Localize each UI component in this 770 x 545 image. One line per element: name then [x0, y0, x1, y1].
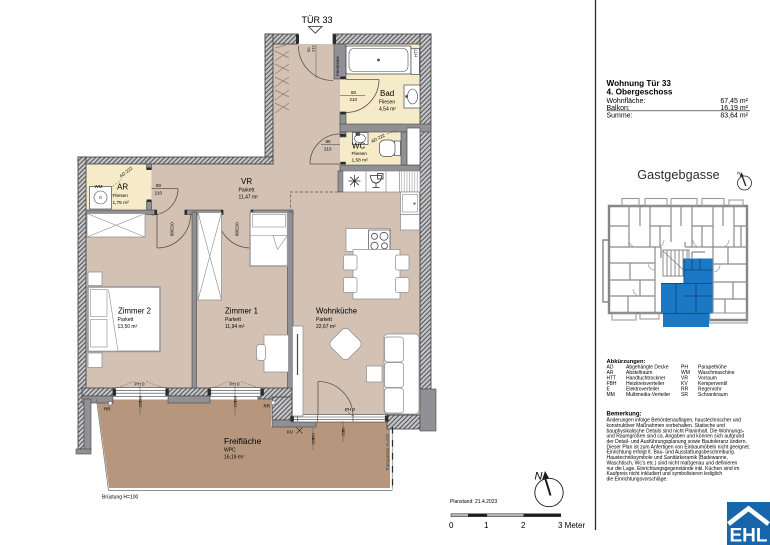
svg-text:PH 0: PH 0: [230, 382, 241, 387]
svg-text:11,94 m²: 11,94 m²: [225, 324, 245, 330]
svg-text:RR: RR: [104, 407, 111, 412]
svg-text:67,45 m²: 67,45 m²: [720, 98, 748, 105]
svg-text:83,64 m²: 83,64 m²: [720, 112, 748, 119]
svg-text:Brüstung H=100: Brüstung H=100: [102, 495, 138, 501]
svg-text:Multimedia-Verteiler: Multimedia-Verteiler: [626, 392, 671, 398]
svg-text:Wohnfläche:: Wohnfläche:: [607, 98, 646, 105]
svg-text:Summe:: Summe:: [607, 112, 633, 119]
svg-text:80: 80: [351, 90, 357, 95]
svg-text:1: 1: [484, 521, 489, 530]
svg-text:Parkett: Parkett: [118, 317, 134, 323]
svg-text:WC: WC: [352, 142, 366, 151]
svg-text:Planstand: 21.4.2023: Planstand: 21.4.2023: [450, 499, 497, 505]
svg-text:HTT: HTT: [413, 48, 418, 57]
svg-text:VR: VR: [241, 177, 252, 186]
svg-text:Gastgebgasse: Gastgebgasse: [637, 168, 719, 182]
svg-text:80: 80: [156, 183, 162, 188]
svg-text:3 Meter: 3 Meter: [558, 521, 585, 530]
svg-text:MM: MM: [607, 392, 615, 398]
svg-text:1,58 m²: 1,58 m²: [352, 158, 369, 164]
svg-text:16,19 m²: 16,19 m²: [224, 455, 244, 461]
svg-text:Parkett: Parkett: [316, 317, 332, 323]
svg-text:Zimmer 2: Zimmer 2: [118, 307, 151, 316]
svg-text:80: 80: [326, 139, 332, 144]
svg-text:die Einrichtungsvorschläge.: die Einrichtungsvorschläge.: [607, 476, 668, 482]
svg-text:1,75 m²: 1,75 m²: [113, 200, 130, 206]
svg-text:210: 210: [324, 147, 332, 152]
svg-text:Transparenz H=220: Transparenz H=220: [385, 433, 390, 471]
svg-text:Fliesen: Fliesen: [352, 151, 368, 157]
svg-text:Fliesen: Fliesen: [379, 100, 395, 106]
svg-text:Fliesen: Fliesen: [113, 193, 129, 199]
svg-text:80/210: 80/210: [170, 222, 175, 236]
svg-text:Parkett: Parkett: [239, 188, 255, 194]
svg-text:WPC: WPC: [224, 448, 236, 454]
svg-text:212: 212: [311, 45, 316, 52]
svg-text:0: 0: [449, 521, 454, 530]
svg-text:PH 0: PH 0: [135, 382, 146, 387]
svg-text:225: 225: [341, 429, 346, 436]
svg-text:13,50 m²: 13,50 m²: [118, 324, 138, 330]
svg-text:210: 210: [155, 191, 163, 196]
svg-text:Zimmer 1: Zimmer 1: [225, 307, 258, 316]
svg-text:Bad: Bad: [380, 89, 394, 98]
svg-text:Wohnküche: Wohnküche: [316, 307, 357, 316]
svg-text:Schrankraum: Schrankraum: [698, 392, 728, 398]
svg-text:AR: AR: [117, 183, 128, 192]
svg-text:KV: KV: [287, 430, 293, 435]
svg-text:N: N: [535, 471, 543, 483]
svg-text:80/210: 80/210: [235, 222, 240, 236]
svg-text:SR: SR: [681, 392, 688, 398]
svg-text:FBH/E/MM: FBH/E/MM: [335, 56, 340, 76]
svg-text:RR: RR: [264, 404, 271, 409]
svg-text:Freifläche: Freifläche: [224, 436, 262, 446]
svg-text:22,67 m²: 22,67 m²: [316, 324, 336, 330]
svg-text:PH 0: PH 0: [345, 407, 356, 412]
svg-text:225: 225: [138, 400, 143, 407]
svg-text:EHL: EHL: [730, 526, 768, 545]
svg-text:225: 225: [233, 400, 238, 407]
svg-text:11,47 m²: 11,47 m²: [239, 195, 259, 201]
svg-text:4,54 m²: 4,54 m²: [379, 107, 396, 113]
svg-text:226: 226: [311, 437, 316, 444]
svg-text:Parkett: Parkett: [225, 317, 241, 323]
svg-text:210: 210: [350, 97, 358, 102]
svg-text:TÜR 33: TÜR 33: [302, 15, 333, 25]
svg-text:2: 2: [521, 521, 526, 530]
svg-text:WM: WM: [95, 184, 103, 189]
svg-text:4. Obergeschoss: 4. Obergeschoss: [607, 87, 673, 96]
